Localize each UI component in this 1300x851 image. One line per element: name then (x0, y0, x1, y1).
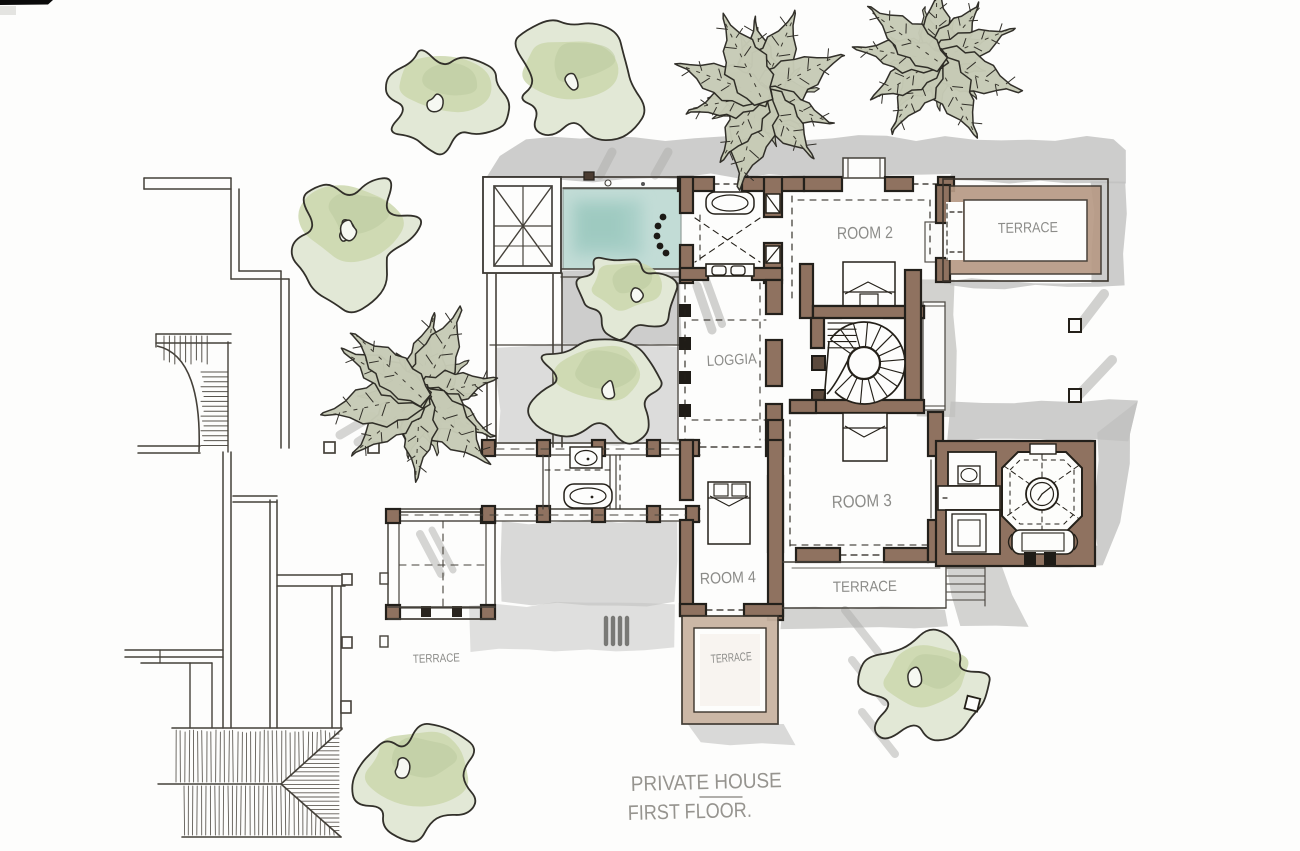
svg-text:PRIVATE HOUSE: PRIVATE HOUSE (631, 769, 783, 796)
svg-text:ROOM 3: ROOM 3 (831, 490, 892, 512)
svg-text:ROOM 4: ROOM 4 (700, 569, 757, 588)
svg-text:FIRST FLOOR.: FIRST FLOOR. (628, 799, 753, 825)
svg-text:TERRACE: TERRACE (998, 220, 1059, 237)
svg-text:ROOM 2: ROOM 2 (837, 223, 893, 243)
svg-text:TERRACE: TERRACE (413, 650, 460, 666)
svg-text:LOGGIA: LOGGIA (706, 350, 757, 370)
svg-text:TERRACE: TERRACE (710, 649, 752, 666)
svg-text:TERRACE: TERRACE (833, 578, 897, 596)
